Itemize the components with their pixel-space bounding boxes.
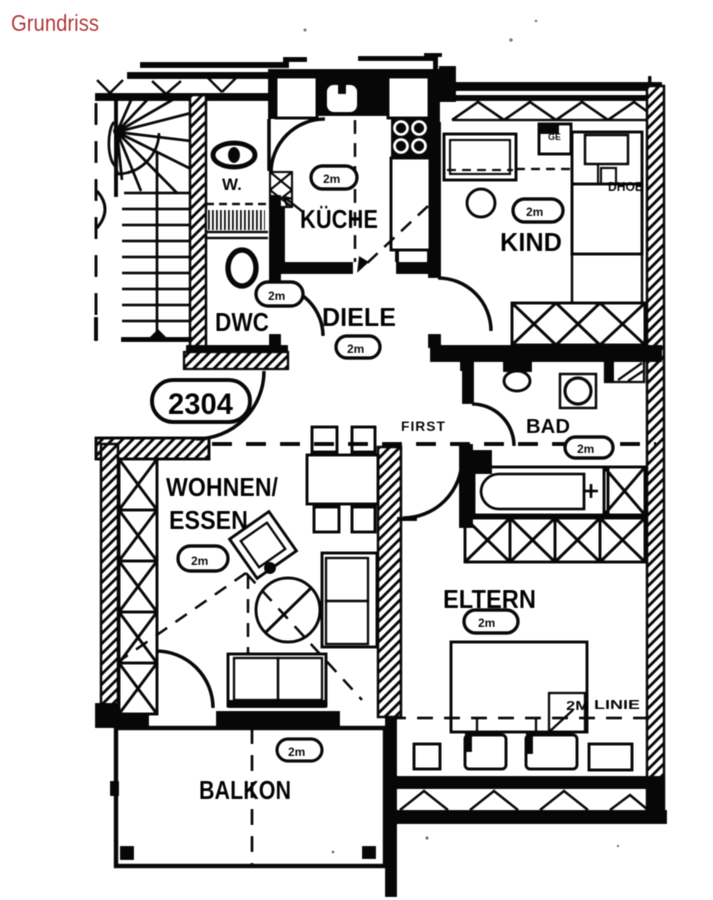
svg-text:KÜCHE: KÜCHE — [300, 204, 378, 234]
svg-text:Grundriss: Grundriss — [11, 10, 99, 36]
svg-text:2m: 2m — [268, 289, 285, 303]
svg-text:DIELE: DIELE — [322, 302, 396, 332]
svg-text:W.: W. — [222, 175, 242, 194]
svg-text:2m: 2m — [191, 554, 208, 568]
svg-text:2m: 2m — [478, 616, 495, 630]
svg-text:GE: GE — [548, 132, 561, 142]
svg-text:BALKON: BALKON — [199, 775, 291, 805]
svg-text:2304: 2304 — [168, 388, 233, 421]
svg-text:2m: 2m — [577, 442, 594, 456]
svg-text:2m: 2m — [323, 172, 340, 186]
svg-text:2m: 2m — [526, 205, 543, 219]
svg-text:FIRST: FIRST — [401, 418, 446, 434]
svg-text:ESSEN: ESSEN — [169, 505, 248, 535]
svg-text:2m: 2m — [288, 745, 305, 759]
svg-text:LINIE: LINIE — [594, 697, 640, 712]
svg-text:BAD: BAD — [526, 416, 570, 438]
svg-text:DWC: DWC — [215, 307, 269, 337]
svg-text:WOHNEN/: WOHNEN/ — [166, 472, 278, 502]
svg-text:2m: 2m — [347, 342, 364, 356]
svg-text:DHOE: DHOE — [608, 179, 643, 194]
svg-text:2M: 2M — [566, 698, 589, 713]
svg-text:KIND: KIND — [500, 227, 562, 257]
